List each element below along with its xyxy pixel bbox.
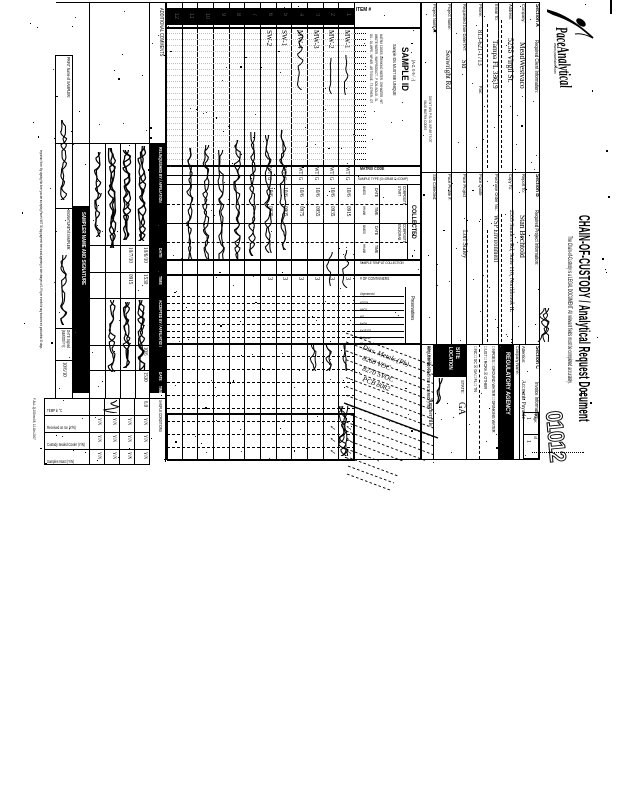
svg-text:01012: 01012: [541, 410, 568, 464]
svg-text:www.pacelabs.com: www.pacelabs.com: [553, 43, 557, 74]
